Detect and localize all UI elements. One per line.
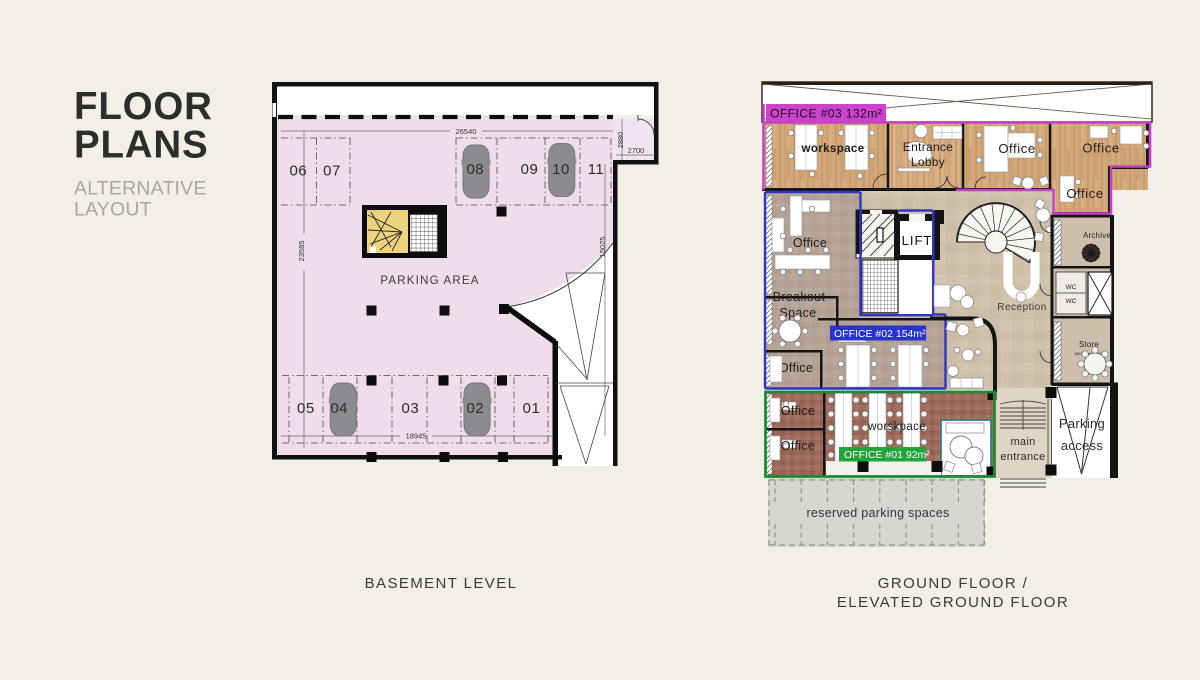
svg-text:06: 06 [289,163,307,180]
svg-text:LAYOUT: LAYOUT [74,199,152,221]
svg-text:Reception: Reception [997,302,1047,313]
svg-text:access: access [1061,438,1103,453]
svg-text:workspace: workspace [800,143,864,155]
svg-text:Archive: Archive [1083,231,1111,240]
svg-text:WC: WC [1066,284,1077,291]
svg-text:10: 10 [552,161,570,178]
svg-text:Office: Office [781,439,815,453]
svg-text:2880: 2880 [616,132,625,149]
svg-text:Office: Office [1082,141,1119,156]
svg-text:worskpace: worskpace [867,421,926,433]
svg-text:Parking: Parking [1059,416,1105,431]
svg-text:ALTERNATIVE: ALTERNATIVE [74,178,207,200]
svg-text:23585: 23585 [297,241,306,262]
svg-text:2700: 2700 [628,146,645,155]
svg-text:04: 04 [330,400,348,417]
svg-text:11: 11 [588,161,605,178]
svg-text:Entrance: Entrance [903,140,953,154]
svg-text:Office: Office [793,236,827,250]
svg-text:Office: Office [998,141,1035,156]
svg-text:03: 03 [402,400,420,417]
svg-text:OFFICE #01 92m²: OFFICE #01 92m² [844,449,930,461]
svg-text:OFFICE #02 154m²: OFFICE #02 154m² [834,328,926,340]
svg-text:entrance: entrance [1000,451,1045,463]
svg-text:07: 07 [323,163,341,180]
svg-text:PLANS: PLANS [74,124,208,167]
svg-text:15025: 15025 [598,237,607,258]
svg-text:WC: WC [1066,298,1077,305]
svg-text:Breakout: Breakout [773,290,826,304]
svg-text:ELEVATED GROUND FLOOR: ELEVATED GROUND FLOOR [837,594,1069,611]
svg-text:02: 02 [466,400,484,417]
svg-text:BASEMENT LEVEL: BASEMENT LEVEL [365,575,518,592]
svg-text:18945: 18945 [406,432,427,441]
svg-text:09: 09 [521,161,539,178]
svg-text:Office: Office [781,404,815,418]
svg-text:08: 08 [466,161,484,178]
svg-text:PARKING AREA: PARKING AREA [380,275,479,287]
svg-text:main: main [1010,436,1035,448]
svg-text:GROUND FLOOR /: GROUND FLOOR / [878,575,1028,592]
svg-text:05: 05 [297,400,315,417]
svg-text:Office: Office [779,361,813,375]
svg-text:LIFT: LIFT [902,233,933,248]
svg-text:Lobby: Lobby [911,155,945,169]
svg-text:OFFICE #03 132m²: OFFICE #03 132m² [770,107,882,121]
svg-text:26540: 26540 [456,127,477,136]
svg-text:Office: Office [1066,186,1103,201]
svg-text:reserved parking spaces: reserved parking spaces [806,506,949,520]
svg-text:FLOOR: FLOOR [74,85,213,128]
svg-text:01: 01 [523,400,541,417]
